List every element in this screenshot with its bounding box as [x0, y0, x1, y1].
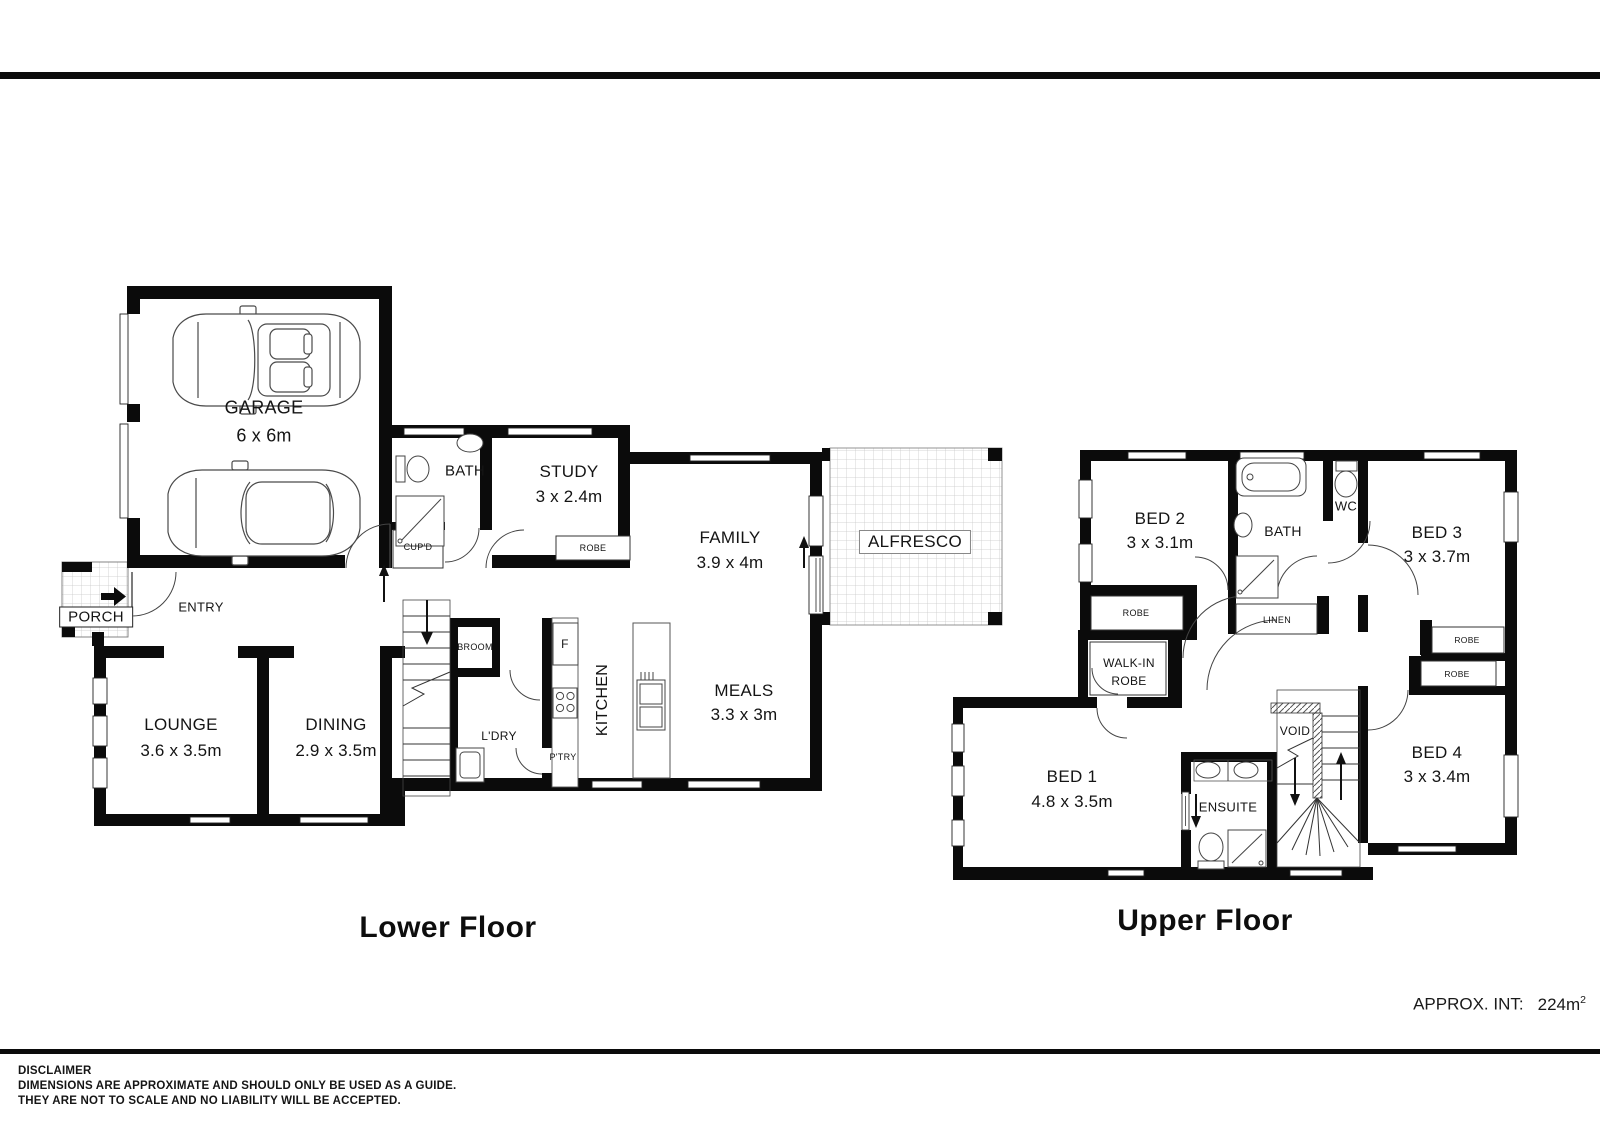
study-label: STUDY: [539, 462, 598, 482]
ensuite-label: ENSUITE: [1199, 800, 1257, 815]
alfresco-label: ALFRESCO: [859, 530, 971, 554]
garage-door-arrow: [379, 564, 389, 602]
upper-floor-plan: [952, 450, 1518, 880]
bed3-label: BED 3: [1412, 523, 1463, 543]
broom-label: BROOM: [457, 642, 493, 652]
bed2-dims: 3 x 3.1m: [1127, 533, 1194, 553]
bed4-dims: 3 x 3.4m: [1404, 767, 1471, 787]
upper-closets: [1090, 596, 1504, 695]
bed1-label: BED 1: [1047, 767, 1098, 787]
entry-label: ENTRY: [178, 600, 223, 615]
bath-label: BATH: [445, 463, 485, 480]
study-robe-label: ROBE: [580, 543, 607, 553]
upper-bath-label: BATH: [1264, 523, 1302, 539]
approx-label: APPROX. INT:: [1413, 995, 1524, 1014]
walkin-robe-label-line2: ROBE: [1111, 674, 1146, 688]
approx-superscript: 2: [1580, 994, 1586, 1006]
linen-label: LINEN: [1263, 615, 1291, 625]
floorplan-page: GARAGE 6 x 6m BATH CUP'D STUDY 3 x 2.4m …: [0, 0, 1600, 1126]
bed4-label: BED 4: [1412, 743, 1463, 763]
disclaimer-line1: DIMENSIONS ARE APPROXIMATE AND SHOULD ON…: [18, 1079, 456, 1094]
disclaimer-line2: THEY ARE NOT TO SCALE AND NO LIABILITY W…: [18, 1094, 456, 1109]
garage-car-coupe: [168, 461, 360, 565]
family-label: FAMILY: [699, 528, 760, 548]
walkin-robe-label-line1: WALK-IN: [1103, 656, 1155, 670]
bed1-dims: 4.8 x 3.5m: [1031, 792, 1112, 812]
wc-label: WC: [1335, 499, 1357, 514]
void-label: VOID: [1280, 724, 1311, 738]
cupd-label: CUP'D: [404, 542, 433, 552]
dining-dims: 2.9 x 3.5m: [295, 741, 376, 761]
bed3-robe-label: ROBE: [1454, 635, 1479, 645]
floorplan-drawing: [0, 0, 1600, 1126]
meals-label: MEALS: [714, 681, 773, 701]
ptry-label: P'TRY: [549, 752, 576, 762]
kitchen-label: KITCHEN: [594, 664, 612, 736]
lower-floor-title: Lower Floor: [359, 911, 536, 945]
approx-value: 224m: [1538, 995, 1581, 1014]
bed4-robe-label: ROBE: [1444, 669, 1469, 679]
lounge-dims: 3.6 x 3.5m: [140, 741, 221, 761]
dining-label: DINING: [305, 715, 366, 735]
bed3-dims: 3 x 3.7m: [1404, 547, 1471, 567]
porch-label: PORCH: [59, 607, 133, 628]
lounge-label: LOUNGE: [144, 715, 218, 735]
alfresco-door-arrow: [799, 536, 809, 568]
upper-stairs: [1271, 690, 1360, 867]
lower-stairs-arrow: [421, 600, 433, 645]
meals-dims: 3.3 x 3m: [711, 705, 778, 725]
family-dims: 3.9 x 4m: [697, 553, 764, 573]
garage-label: GARAGE: [225, 398, 304, 419]
bed2-robe-label: ROBE: [1123, 608, 1150, 618]
garage-dims: 6 x 6m: [236, 426, 291, 447]
approx-internal-area: APPROX. INT:224m2: [1413, 994, 1586, 1015]
upper-floor-title: Upper Floor: [1117, 904, 1293, 938]
lower-bath-fixtures: [396, 434, 483, 546]
disclaimer: DISCLAIMER DIMENSIONS ARE APPROXIMATE AN…: [18, 1064, 456, 1109]
disclaimer-title: DISCLAIMER: [18, 1064, 456, 1079]
ldry-label: L'DRY: [481, 729, 517, 743]
study-dims: 3 x 2.4m: [536, 487, 603, 507]
fridge-label: F: [561, 637, 569, 651]
bed2-label: BED 2: [1135, 509, 1186, 529]
